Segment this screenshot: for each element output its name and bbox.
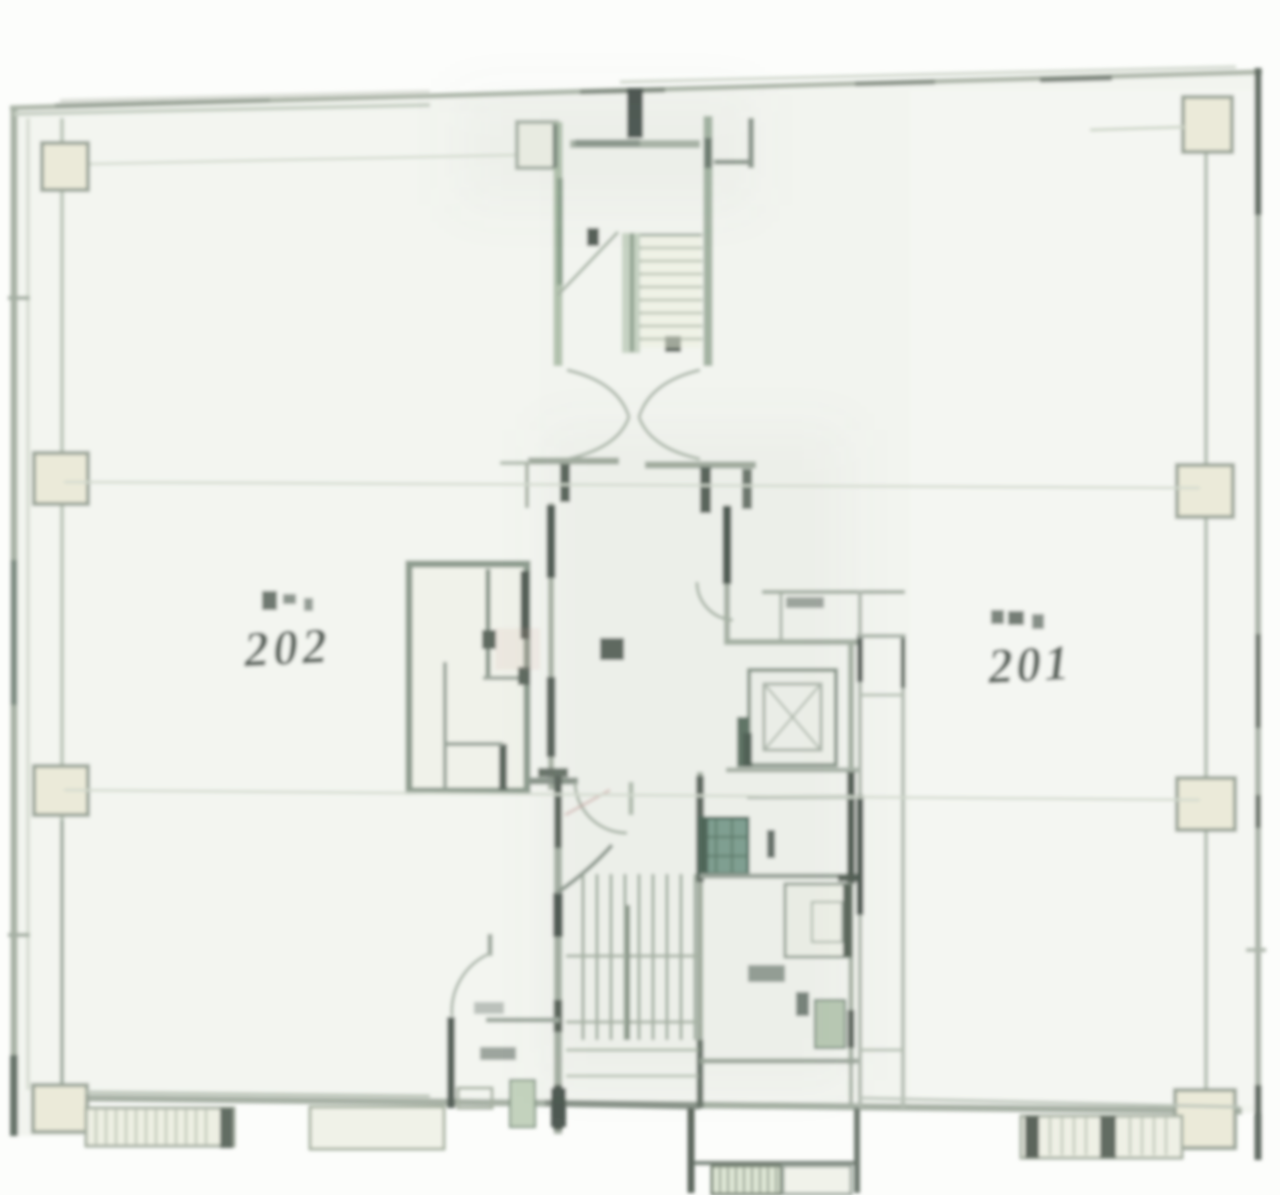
svg-text:202: 202: [242, 617, 333, 678]
svg-text:201: 201: [986, 634, 1074, 694]
